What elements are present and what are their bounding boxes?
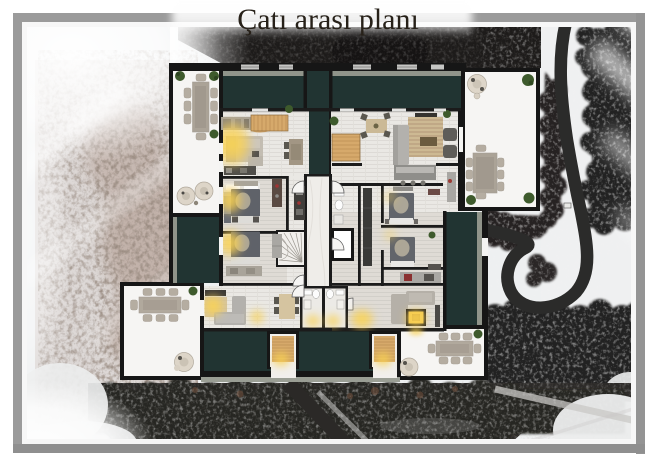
svg-text:Çatı arası planı: Çatı arası planı bbox=[237, 3, 419, 36]
